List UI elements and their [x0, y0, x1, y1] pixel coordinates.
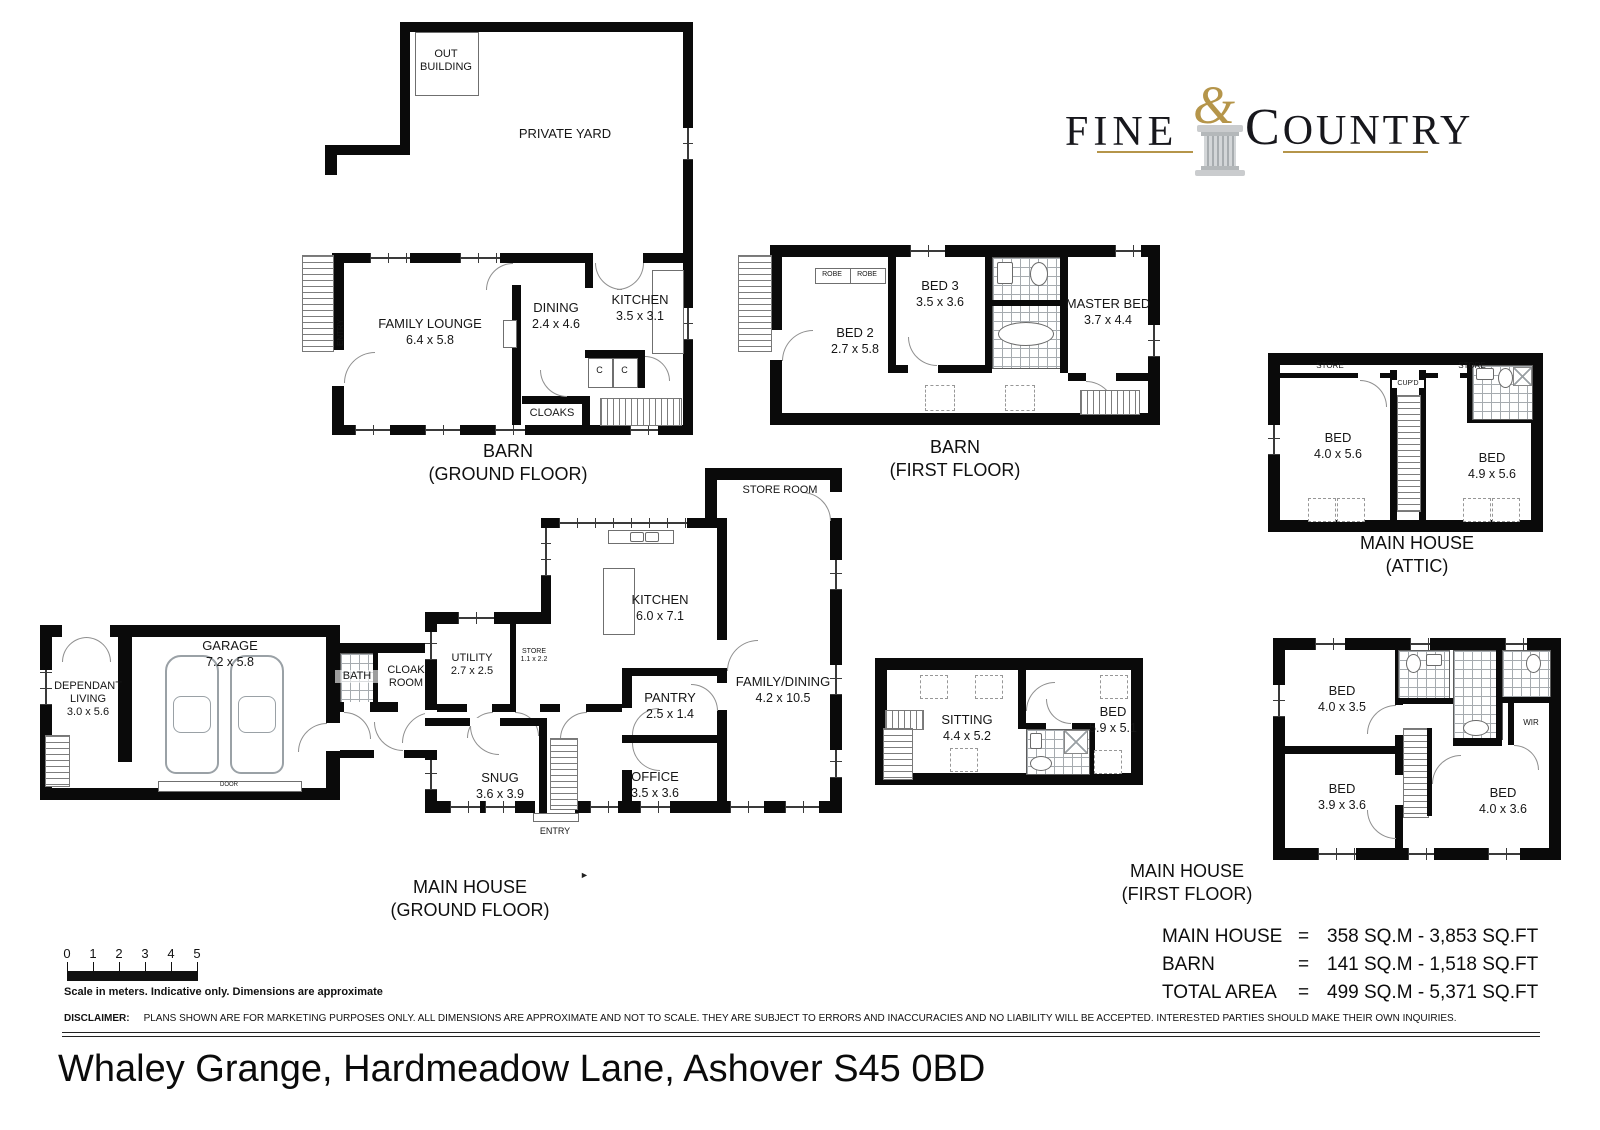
- room-label-bed2: BED 2 2.7 x 5.8: [815, 325, 895, 357]
- room-dims: 7.2 x 5.8: [190, 654, 270, 670]
- logo-rest: OUNTRY: [1283, 108, 1474, 154]
- window: [541, 528, 551, 576]
- room-name: BED 3: [900, 278, 980, 294]
- door-arc: [782, 330, 813, 361]
- door-arc: [645, 356, 670, 381]
- window: [1273, 685, 1285, 717]
- room-label-dependant-living: DEPENDANT LIVING 3.0 x 5.6: [48, 680, 128, 719]
- room-label-private-yard: PRIVATE YARD: [495, 126, 635, 142]
- room-dims: 3.5 x 3.6: [625, 785, 685, 801]
- title-line: MAIN HOUSE: [350, 876, 590, 899]
- room-label-wir: WIR: [1514, 718, 1548, 727]
- window: [1488, 848, 1520, 860]
- door-opening: [622, 708, 632, 735]
- room-name: FAMILY LOUNGE: [360, 316, 500, 332]
- door-arc: [1026, 682, 1055, 711]
- scale-bar-fill: [67, 972, 198, 981]
- bath-fixture: [1463, 720, 1489, 736]
- plan-main-house-first-floor-wing: SITTING 4.4 x 5.2 BED 5.9 x 5.1: [850, 630, 1170, 790]
- furniture-outline: [1492, 498, 1520, 522]
- window: [1318, 848, 1356, 860]
- door-opening: [425, 710, 437, 750]
- room-dims: 3.5 x 3.1: [600, 308, 680, 324]
- door-arc: [1432, 755, 1461, 784]
- room-label-attic-bed2: BED 4.9 x 5.6: [1452, 450, 1532, 482]
- door-opening: [1395, 705, 1403, 735]
- room-label-kitchen: KITCHEN 3.5 x 3.1: [600, 292, 680, 324]
- window: [640, 801, 670, 813]
- window: [830, 560, 842, 590]
- door-opening: [512, 263, 521, 285]
- room-name: BED 2: [815, 325, 895, 341]
- car-cabin: [238, 696, 276, 733]
- column-shaft: [1204, 136, 1236, 166]
- title-barn-first: BARN (FIRST FLOOR): [835, 436, 1075, 482]
- window: [683, 308, 693, 340]
- window: [425, 760, 437, 790]
- cupboard-label: CUP'D: [1392, 380, 1424, 388]
- window: [460, 253, 500, 263]
- room-dims: 3.5 x 3.6: [900, 294, 980, 310]
- room-name: SITTING: [937, 712, 997, 728]
- room-name: DEPENDANT LIVING: [48, 680, 128, 706]
- door-arc: [486, 263, 513, 290]
- wall: [118, 625, 340, 637]
- room-dims: 2.7 x 5.8: [815, 341, 895, 357]
- room-dims: 4.9 x 5.6: [1452, 466, 1532, 482]
- cupboard-label: C: [613, 365, 636, 375]
- plan-barn-ground-floor: OUT BUILDING PRIVATE YARD FAMILY LOUNGE …: [300, 20, 700, 500]
- room-dims: 4.0 x 3.6: [1463, 801, 1543, 817]
- title-line: MAIN HOUSE: [1297, 532, 1537, 555]
- window: [590, 801, 618, 813]
- room-name: BED: [1298, 430, 1378, 446]
- toilet-fixture: [1030, 262, 1048, 286]
- furniture-outline: [920, 675, 948, 699]
- logo-underline: [1097, 151, 1193, 153]
- stairs: [302, 255, 334, 352]
- room-name: STORE: [515, 648, 553, 656]
- title-line: BARN: [388, 440, 628, 463]
- door-arc: [1514, 745, 1539, 770]
- disclaimer-label: DISCLAIMER:: [64, 1013, 130, 1024]
- wall: [875, 773, 1143, 785]
- plan-main-house-ground-floor: DEPENDANT LIVING 3.0 x 5.6 GARAGE 7.2 x …: [30, 440, 860, 920]
- entry-porch: [533, 813, 579, 822]
- door-arc: [540, 370, 567, 397]
- toilet-fixture: [1030, 756, 1052, 771]
- wall: [622, 735, 727, 743]
- room-label-store-small: STORE 1.1 x 2.2: [515, 648, 553, 664]
- room-label-attic-bed1: BED 4.0 x 5.6: [1298, 430, 1378, 462]
- logo-ampersand: &: [1193, 74, 1235, 136]
- scale-tick-label: 0: [60, 946, 74, 961]
- room-dims: 6.0 x 7.1: [620, 608, 700, 624]
- room-dims: 3.6 x 3.9: [470, 786, 530, 802]
- room-label-sitting: SITTING 4.4 x 5.2: [937, 712, 997, 744]
- wall: [325, 145, 337, 175]
- wall: [585, 263, 593, 288]
- column-base: [1195, 170, 1245, 176]
- furniture-outline: [1337, 498, 1365, 522]
- wall: [705, 468, 842, 480]
- door-opening: [118, 762, 132, 788]
- car-outline: [165, 655, 219, 774]
- room-dims: 2.7 x 2.5: [442, 665, 502, 678]
- room-label-cloak-room: CLOAK ROOM: [378, 664, 434, 690]
- room-label-bed3: BED 3 3.5 x 3.6: [900, 278, 980, 310]
- door-opening: [908, 365, 938, 373]
- furniture-outline: [975, 675, 1003, 699]
- room-name: PANTRY: [640, 690, 700, 706]
- room-name: GARAGE: [190, 638, 270, 654]
- door-opening: [467, 704, 492, 712]
- window: [1115, 245, 1141, 257]
- sink-fixture: [630, 532, 644, 542]
- room-dims: 6.4 x 5.8: [360, 332, 500, 348]
- title-attic: MAIN HOUSE (ATTIC): [1297, 532, 1537, 578]
- wall: [1285, 746, 1395, 754]
- door-arc: [344, 352, 375, 383]
- wall: [875, 658, 1143, 670]
- door-arc: [908, 337, 937, 366]
- wall: [770, 245, 1160, 257]
- window: [1505, 638, 1527, 650]
- disclaimer: DISCLAIMER:PLANS SHOWN ARE FOR MARKETING…: [64, 1013, 1456, 1024]
- area-value: 358 SQ.M - 3,853 SQ.FT: [1327, 926, 1538, 948]
- wall: [622, 668, 727, 676]
- door-arc: [374, 722, 403, 751]
- car-outline: [230, 655, 284, 774]
- door-arc: [1367, 810, 1396, 839]
- door-opening: [516, 704, 540, 712]
- window: [1408, 848, 1434, 860]
- door-arc: [470, 726, 499, 755]
- bath-fixture: [998, 322, 1054, 346]
- wall: [1398, 698, 1453, 704]
- furniture-outline: [1005, 385, 1035, 411]
- window: [683, 128, 693, 160]
- door-opening: [1395, 775, 1403, 805]
- wall: [400, 22, 410, 155]
- sink-fixture: [1030, 733, 1042, 749]
- room-dims: 4.4 x 5.2: [937, 728, 997, 744]
- door-opening: [62, 625, 110, 637]
- room-dims: 3.9 x 3.6: [1302, 797, 1382, 813]
- window: [425, 632, 437, 660]
- logo-initial: C: [1245, 99, 1283, 156]
- scale-tick-label: 3: [138, 946, 152, 961]
- window: [425, 425, 460, 435]
- room-label-office: OFFICE 3.5 x 3.6: [625, 769, 685, 801]
- furniture-outline: [1308, 498, 1336, 522]
- wall: [1427, 728, 1432, 816]
- room-label-kitchen-main: KITCHEN 6.0 x 7.1: [620, 592, 700, 624]
- room-name: BED: [1078, 704, 1148, 720]
- room-dims: 4.2 x 10.5: [725, 690, 841, 706]
- scale-tick-label: 2: [112, 946, 126, 961]
- wall: [582, 396, 590, 425]
- wall: [325, 145, 410, 155]
- room-label-family-lounge: FAMILY LOUNGE 6.4 x 5.8: [360, 316, 500, 348]
- sink-fixture: [645, 532, 659, 542]
- logo-word-fine: FINE: [1065, 108, 1178, 156]
- scale-tick-label: 1: [86, 946, 100, 961]
- title-barn-ground: BARN (GROUND FLOOR): [388, 440, 628, 486]
- door-arc: [560, 712, 587, 739]
- window: [458, 612, 494, 624]
- wall: [1273, 638, 1285, 860]
- door-arc: [86, 637, 111, 662]
- fireplace: [503, 320, 517, 348]
- room-label-snug: SNUG 3.6 x 3.9: [470, 770, 530, 802]
- title-line: (GROUND FLOOR): [388, 463, 628, 486]
- room-label-dining: DINING 2.4 x 4.6: [516, 300, 596, 332]
- window: [830, 750, 842, 778]
- wall: [539, 726, 547, 813]
- equals-sign: =: [1298, 982, 1309, 1004]
- room-label-ff-bed2: BED 3.9 x 3.6: [1302, 781, 1382, 813]
- window: [355, 425, 390, 435]
- room-label-family-dining: FAMILY/DINING 4.2 x 10.5: [725, 674, 841, 706]
- door-arc: [298, 723, 327, 752]
- room-name: OFFICE: [625, 769, 685, 785]
- room-dims: 3.7 x 4.4: [1063, 312, 1153, 328]
- store-label: STORE: [1442, 361, 1502, 370]
- entry-label: ENTRY: [533, 826, 577, 836]
- door-opening: [470, 718, 500, 726]
- scale-tick-label: 4: [164, 946, 178, 961]
- sink-fixture: [1426, 654, 1442, 666]
- plan-main-house-first-floor: BED 4.0 x 3.5 BED 3.9 x 3.6 BED 4.0 x 3.…: [1230, 610, 1570, 900]
- stairs: [600, 398, 682, 426]
- disclaimer-text: PLANS SHOWN ARE FOR MARKETING PURPOSES O…: [144, 1013, 1457, 1024]
- room-dims: 3.0 x 5.6: [48, 706, 128, 719]
- wall: [326, 643, 437, 653]
- door-arc: [617, 263, 644, 290]
- room-name: FAMILY/DINING: [725, 674, 841, 690]
- door-arc: [344, 712, 371, 739]
- wall: [522, 396, 590, 404]
- window: [730, 801, 764, 813]
- stairs: [885, 710, 924, 730]
- window: [559, 518, 687, 528]
- window: [785, 801, 819, 813]
- window: [1315, 638, 1345, 650]
- store-label: STORE: [1300, 361, 1360, 370]
- window: [485, 801, 515, 813]
- entry-label: ENTRY: [336, 305, 345, 360]
- room-label-garage: GARAGE 7.2 x 5.8: [190, 638, 270, 670]
- wall: [985, 257, 992, 373]
- equals-sign: =: [1298, 954, 1309, 976]
- door-opening: [1438, 373, 1460, 378]
- toilet-fixture: [1406, 654, 1421, 673]
- room-name: DINING: [516, 300, 596, 316]
- room-dims: 2.5 x 1.4: [640, 706, 700, 722]
- room-label-store-room: STORE ROOM: [735, 484, 825, 497]
- door-opening: [344, 702, 370, 712]
- title-mh-ground: MAIN HOUSE (GROUND FLOOR): [350, 876, 590, 922]
- room-name: BED: [1463, 785, 1543, 801]
- door-opening: [1086, 373, 1116, 381]
- cupboard-label: C: [588, 365, 611, 375]
- room-label-ff-bed1: BED 4.0 x 3.5: [1302, 683, 1382, 715]
- room-dims: 1.1 x 2.2: [515, 656, 553, 664]
- title-line: (FIRST FLOOR): [1067, 883, 1307, 906]
- room-label-bath: BATH: [335, 670, 379, 683]
- door-opening: [717, 640, 727, 670]
- door-opening: [593, 253, 643, 263]
- toilet-fixture: [1498, 368, 1513, 388]
- furniture-outline: [925, 385, 955, 411]
- area-value: 499 SQ.M - 5,371 SQ.FT: [1327, 982, 1538, 1004]
- scale-caption: Scale in meters. Indicative only. Dimens…: [64, 986, 383, 998]
- room-dims: 5.9 x 5.1: [1078, 720, 1148, 736]
- window: [1268, 425, 1280, 455]
- room-name: BED: [1302, 683, 1382, 699]
- wall: [585, 350, 645, 358]
- window: [910, 245, 945, 257]
- title-line: (FIRST FLOOR): [835, 459, 1075, 482]
- car-cabin: [173, 696, 211, 733]
- wall: [1453, 738, 1502, 746]
- furniture-outline: [950, 748, 978, 772]
- separator-line: [62, 1032, 1540, 1037]
- window: [1410, 638, 1430, 650]
- room-name: KITCHEN: [600, 292, 680, 308]
- window: [1148, 325, 1160, 357]
- stairs: [883, 728, 913, 780]
- room-label-utility: UTILITY 2.7 x 2.5: [442, 652, 502, 678]
- area-row-barn: BARN = 141 SQ.M - 1,518 SQ.FT: [1162, 954, 1582, 978]
- door-opening: [1358, 373, 1380, 378]
- stairs: [1403, 728, 1429, 818]
- door-opening: [622, 743, 632, 770]
- wall: [637, 350, 645, 388]
- room-label-ff-bed3: BED 4.0 x 3.6: [1463, 785, 1543, 817]
- room-name: MASTER BED: [1063, 296, 1153, 312]
- door-arc: [632, 743, 660, 771]
- area-value: 141 SQ.M - 1,518 SQ.FT: [1327, 954, 1538, 976]
- area-row-main-house: MAIN HOUSE = 358 SQ.M - 3,853 SQ.FT: [1162, 926, 1582, 950]
- title-line: BARN: [835, 436, 1075, 459]
- floorplan-page: { "page": { "address": "Whaley Grange, H…: [0, 0, 1600, 1130]
- window: [495, 425, 525, 435]
- robe-label: ROBE: [850, 271, 884, 279]
- area-label: BARN: [1162, 954, 1215, 976]
- shower-tray: [1513, 367, 1532, 386]
- scale-tick-label: 5: [190, 946, 204, 961]
- furniture-outline: [1100, 675, 1128, 699]
- room-dims: 2.4 x 4.6: [516, 316, 596, 332]
- door-opening: [830, 492, 842, 518]
- garage-door-label: DOOR: [200, 782, 258, 789]
- room-label-out-building: OUT BUILDING: [417, 48, 475, 74]
- stairs: [1080, 390, 1140, 415]
- room-dims: 4.0 x 3.5: [1302, 699, 1382, 715]
- door-arc: [727, 640, 758, 671]
- window: [450, 801, 480, 813]
- door-opening: [560, 704, 586, 712]
- robe-label: ROBE: [815, 271, 849, 279]
- equals-sign: =: [1298, 926, 1309, 948]
- stairs: [45, 735, 70, 787]
- room-dims: 4.0 x 5.6: [1298, 446, 1378, 462]
- title-line: (ATTIC): [1297, 555, 1537, 578]
- door-arc: [62, 637, 87, 662]
- furniture-outline: [1463, 498, 1491, 522]
- room-name: BED: [1302, 781, 1382, 797]
- stairs: [738, 255, 772, 352]
- wall: [1390, 370, 1397, 520]
- room-label-wing-bed: BED 5.9 x 5.1: [1078, 704, 1148, 736]
- room-label-pantry: PANTRY 2.5 x 1.4: [640, 690, 700, 722]
- room-label-cloaks: CLOAKS: [524, 407, 580, 420]
- wall: [683, 22, 693, 435]
- door-opening: [374, 750, 404, 758]
- room-name: BED: [1452, 450, 1532, 466]
- furniture-outline: [1094, 750, 1122, 774]
- tiled-floor: [1398, 650, 1450, 700]
- fine-and-country-logo: FINE & COUNTRY: [1055, 82, 1445, 187]
- room-label-master-bed: MASTER BED 3.7 x 4.4: [1063, 296, 1153, 328]
- sink-fixture: [997, 262, 1013, 284]
- wall: [400, 22, 693, 32]
- door-opening: [326, 723, 340, 751]
- title-line: MAIN HOUSE: [1067, 860, 1307, 883]
- room-name: KITCHEN: [620, 592, 700, 608]
- wall: [985, 300, 1060, 306]
- toilet-fixture: [1526, 654, 1541, 673]
- wall: [1018, 670, 1026, 728]
- logo-word-country: COUNTRY: [1245, 98, 1473, 157]
- door-arc: [1360, 380, 1387, 407]
- window: [370, 253, 410, 263]
- wall: [510, 624, 516, 704]
- room-name: SNUG: [470, 770, 530, 786]
- area-label: TOTAL AREA: [1162, 982, 1277, 1004]
- property-address: Whaley Grange, Hardmeadow Lane, Ashover …: [58, 1048, 985, 1091]
- window: [630, 425, 658, 435]
- room-name: UTILITY: [442, 652, 502, 665]
- title-mh-first: MAIN HOUSE (FIRST FLOOR): [1067, 860, 1307, 906]
- stairs: [550, 738, 578, 810]
- area-row-total: TOTAL AREA = 499 SQ.M - 5,371 SQ.FT: [1162, 982, 1582, 1006]
- stairs: [1397, 395, 1421, 512]
- logo-underline: [1283, 151, 1428, 153]
- title-line: (GROUND FLOOR): [350, 899, 590, 922]
- area-label: MAIN HOUSE: [1162, 926, 1282, 948]
